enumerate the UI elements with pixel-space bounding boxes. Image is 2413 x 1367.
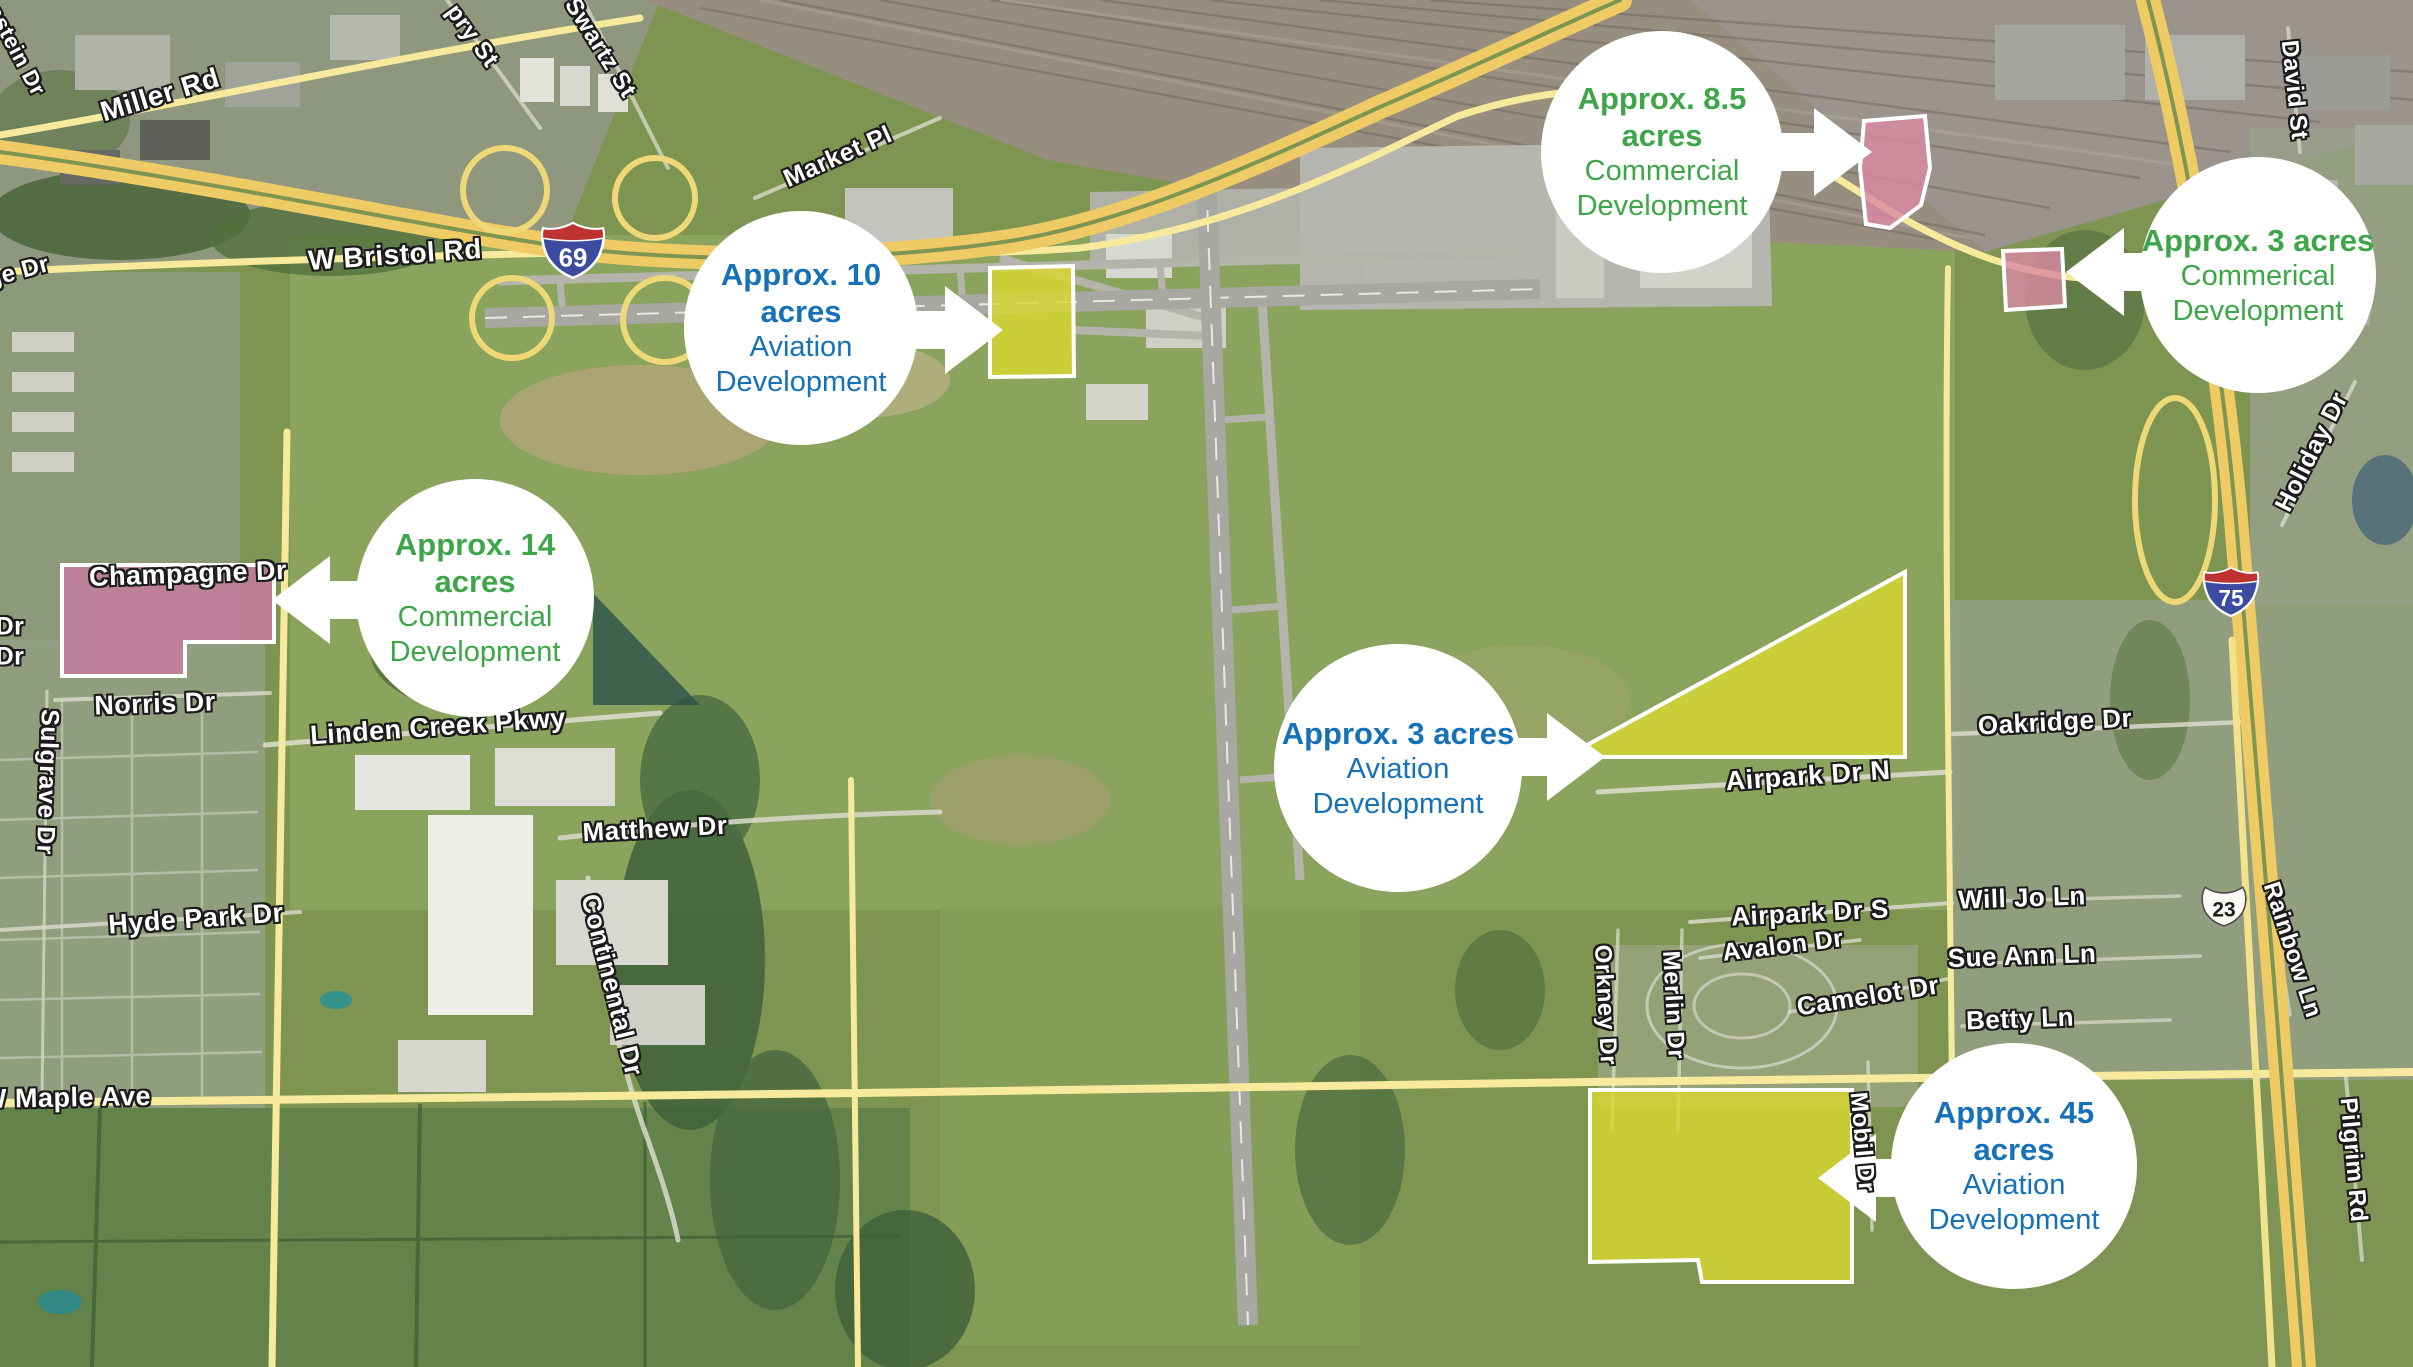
- parcel-aviation-45-acres: [1590, 1090, 1852, 1282]
- satellite-map: [0, 0, 2413, 1367]
- pool: [38, 1290, 82, 1314]
- map-canvas: Miller Rdpry StSwartz StMarket PlW Brist…: [0, 0, 2413, 1367]
- pool: [320, 991, 352, 1009]
- parcel-aviation-10-acres: [990, 266, 1074, 377]
- parcel-commercial-3-acres: [2003, 249, 2065, 310]
